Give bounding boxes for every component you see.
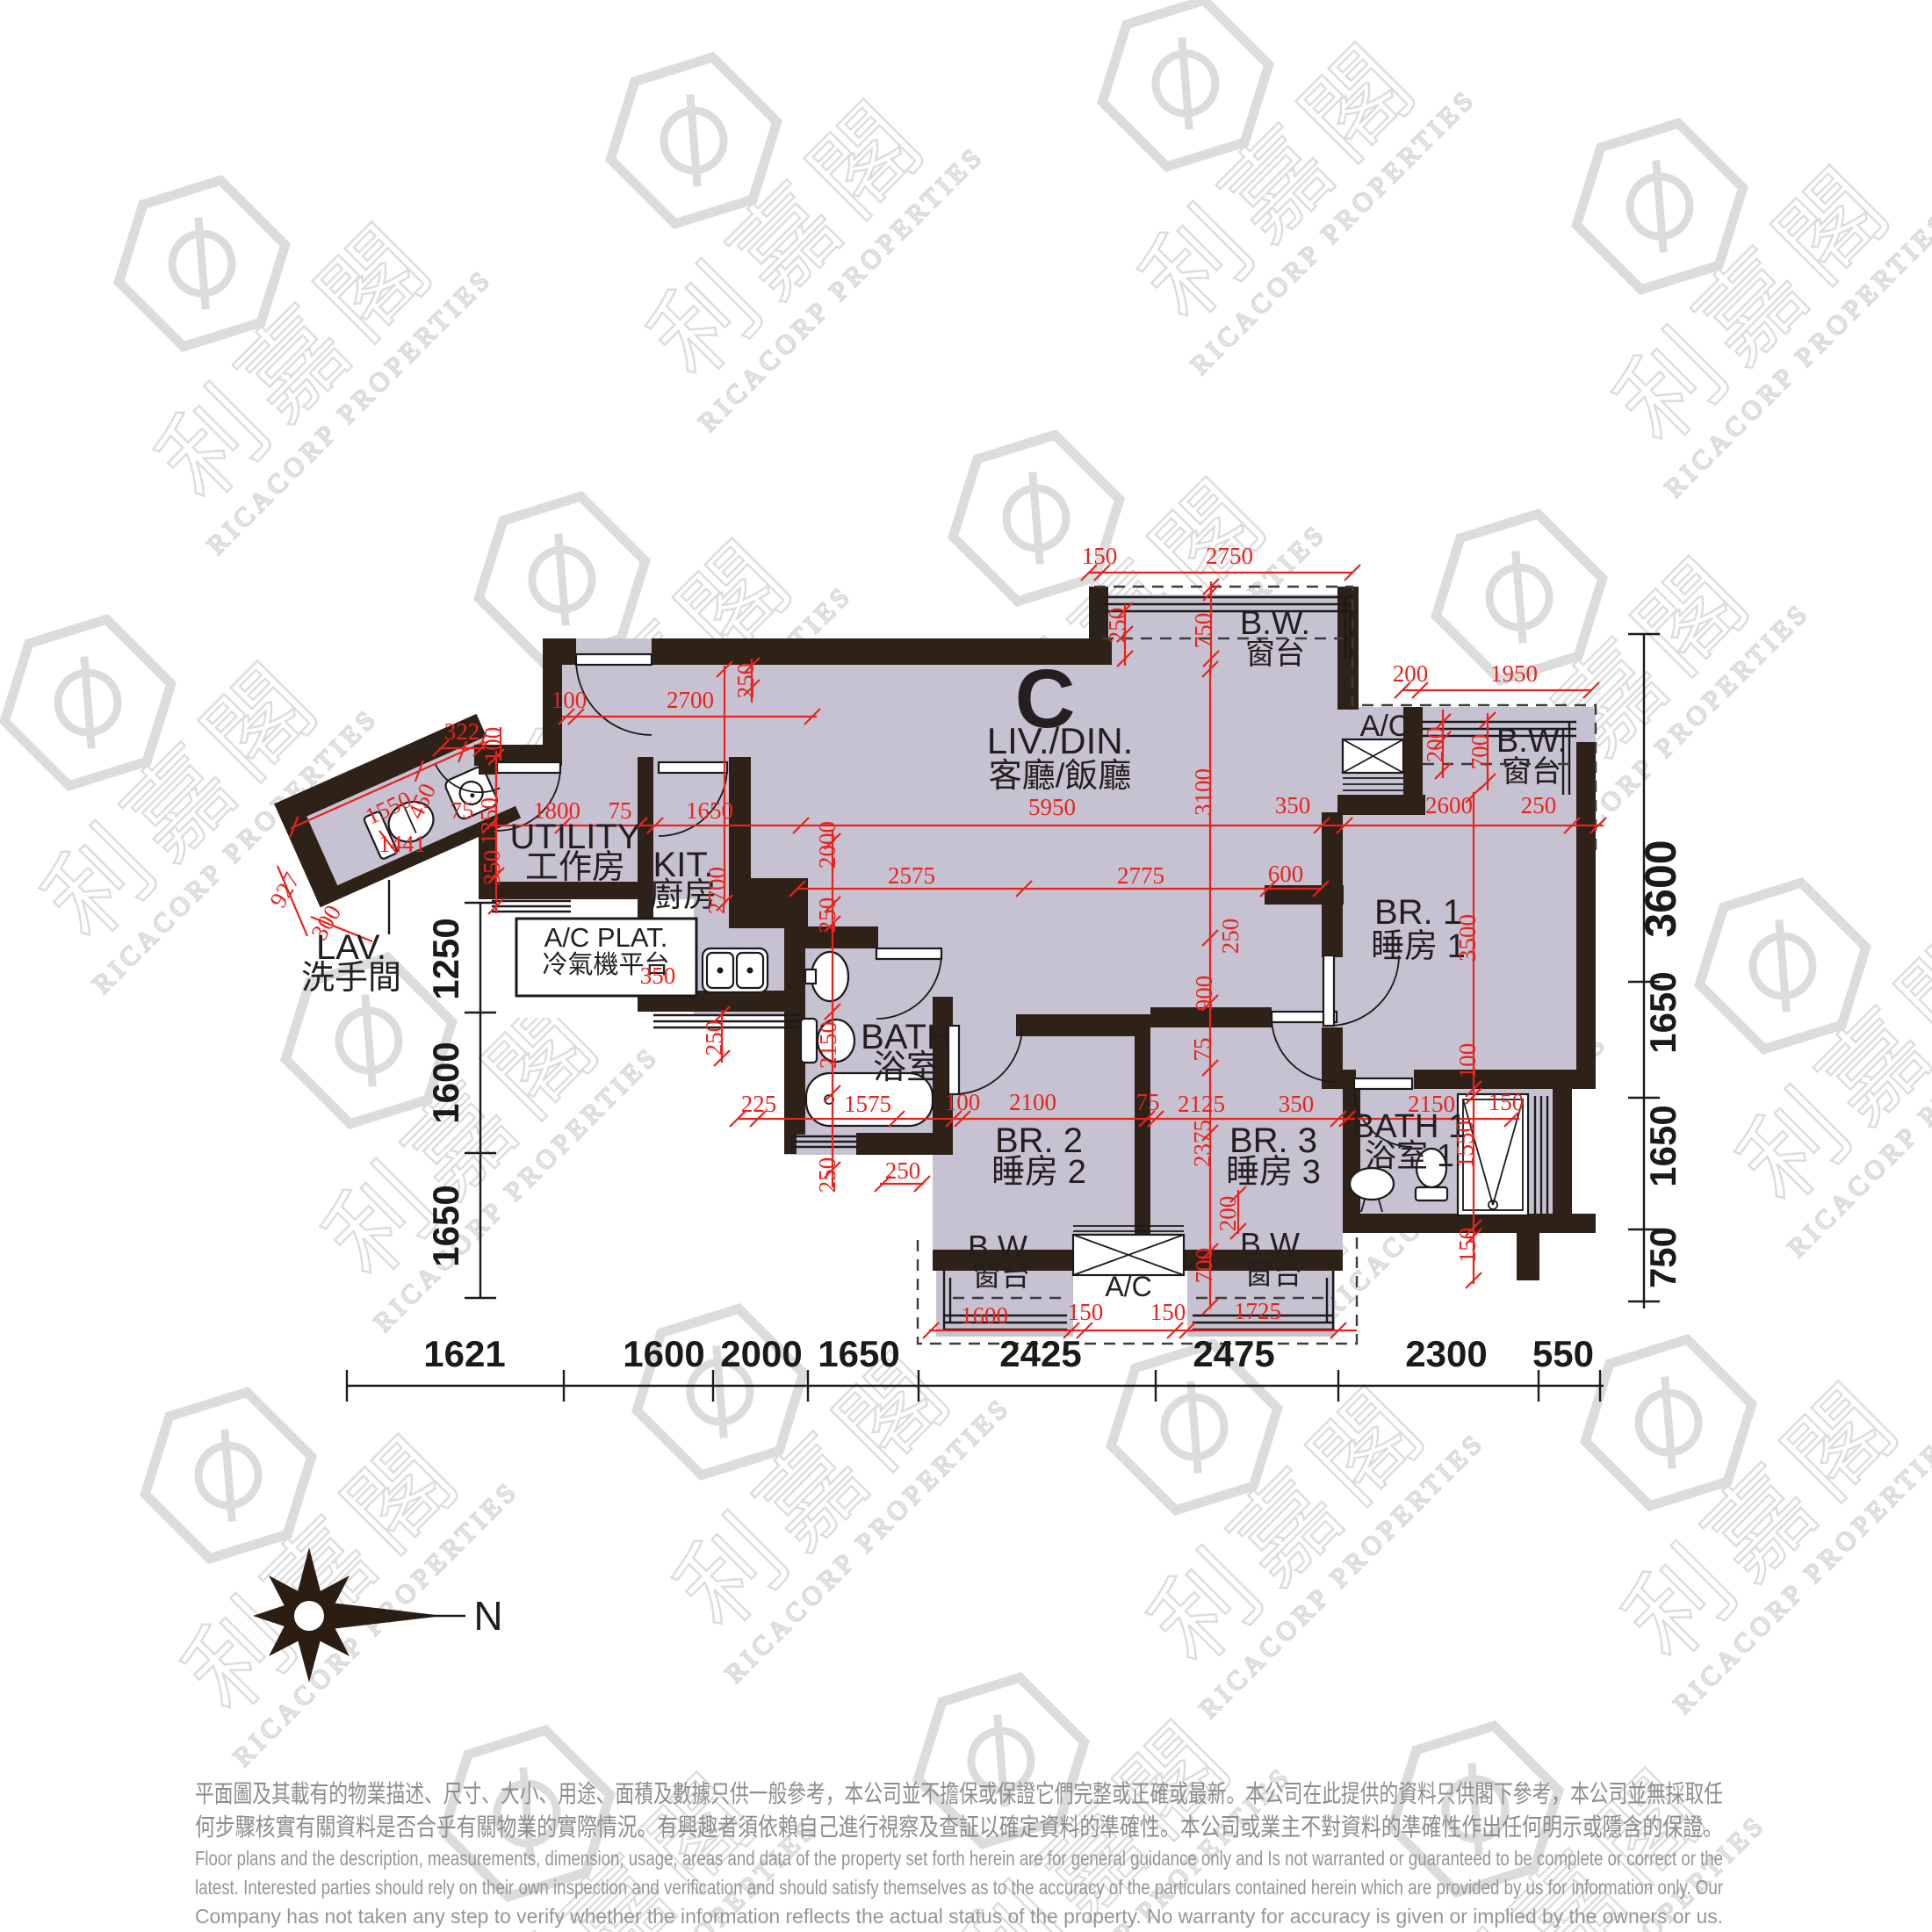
ricacorp-watermark-icon: 利嘉閣RICACORP PROPERTIES xyxy=(988,0,1481,380)
dim-label: 1550 xyxy=(1452,1121,1478,1168)
dim-label: 350 xyxy=(1275,792,1311,818)
room-label-zh: 工作房 xyxy=(525,849,625,886)
dim-label: 225 xyxy=(741,1091,777,1117)
room-label-zh: 窗台 xyxy=(1244,1258,1302,1290)
dim-label: 2150 xyxy=(815,1021,841,1069)
dim-label: 200 xyxy=(1422,727,1448,763)
dim-label: 2700 xyxy=(703,867,730,914)
dim-label: 75 xyxy=(609,797,632,824)
dim-label: 350 xyxy=(1279,1091,1315,1117)
dim-label: 250 xyxy=(885,1157,921,1184)
room-label-zh: 窗台 xyxy=(1502,755,1561,789)
axis-label-left: 1600 xyxy=(425,1042,466,1123)
room-label-zh: 洗手間 xyxy=(301,960,401,997)
axis-label-bottom: 2425 xyxy=(999,1333,1081,1374)
dim-label: 322 xyxy=(444,718,480,745)
ricacorp-watermark-icon: 利嘉閣RICACORP PROPERTIES xyxy=(4,66,498,559)
axis-label-bottom: 550 xyxy=(1532,1333,1594,1374)
dim-label: 1725 xyxy=(1234,1298,1281,1324)
floor-plan-canvas: 利嘉閣RICACORP PROPERTIES利嘉閣RICACORP PROPER… xyxy=(0,0,1932,1932)
dim-label: 1350 xyxy=(476,797,502,845)
room-label-en: B.W. xyxy=(1496,723,1567,760)
dim-label: 1650 xyxy=(686,797,733,824)
room-label-en: A/C xyxy=(1105,1271,1151,1302)
dim-label: 250 xyxy=(1104,608,1130,644)
dim-label: 100 xyxy=(551,687,588,713)
room-label-en: A/C PLAT. xyxy=(544,922,668,953)
dim-label: 3500 xyxy=(1454,914,1481,962)
dim-label: 5950 xyxy=(1028,794,1076,820)
room-label-zh: 浴室 1 xyxy=(1365,1137,1454,1173)
dim-label: 2600 xyxy=(1425,792,1473,818)
disclaimer-en-line: latest. Interested parties should rely o… xyxy=(195,1876,1723,1899)
dim-label: 2375 xyxy=(1189,1120,1215,1167)
dim-label: 1575 xyxy=(844,1091,891,1117)
room-label-zh: 睡房 1 xyxy=(1371,928,1466,965)
dim-label: 100 xyxy=(479,727,506,763)
misc-text-layer: N xyxy=(473,1593,502,1639)
dim-label: 600 xyxy=(1268,861,1304,887)
dim-label: 700 xyxy=(1467,734,1493,770)
dim-label: 2575 xyxy=(888,862,935,889)
dim-label: 3100 xyxy=(1190,768,1216,816)
dim-label: 1441 xyxy=(378,831,426,857)
axis-label-bottom: 2475 xyxy=(1193,1333,1274,1374)
room-label-en: B.W. xyxy=(1240,605,1310,642)
dim-label: 350 xyxy=(479,850,505,886)
disclaimer-en-line: Company has not taken any step to verify… xyxy=(195,1905,1723,1928)
room-label-zh: 窗台 xyxy=(1245,638,1305,671)
axis-label-bottom: 1621 xyxy=(423,1333,505,1374)
dim-label: 150 xyxy=(1082,543,1118,569)
dim-label: 200 xyxy=(1393,660,1429,687)
dim-label: 1950 xyxy=(1490,660,1538,687)
dim-label: 750 xyxy=(1190,613,1216,649)
dim-label: 2125 xyxy=(1178,1091,1225,1117)
dim-label: 75 xyxy=(1189,1038,1215,1062)
floor-plan-page: 利嘉閣RICACORP PROPERTIES利嘉閣RICACORP PROPER… xyxy=(0,0,1932,1932)
dim-label: 1600 xyxy=(961,1302,1008,1329)
dim-label: 250 xyxy=(814,898,840,934)
axis-label-right: 750 xyxy=(1642,1227,1683,1288)
axis-label-bottom: 1650 xyxy=(818,1333,899,1374)
dim-label: 150 xyxy=(1454,1228,1481,1264)
dim-label: 250 xyxy=(732,663,759,699)
dim-label: 2700 xyxy=(667,687,714,713)
dim-label: 2750 xyxy=(1206,543,1253,569)
axis-label-right: 1650 xyxy=(1642,971,1683,1053)
dim-label: 250 xyxy=(1521,792,1557,818)
compass-north-label: N xyxy=(473,1593,502,1639)
dim-label: 150 xyxy=(1489,1089,1525,1115)
dim-label: 900 xyxy=(1191,976,1217,1012)
dim-label: 200 xyxy=(1215,1196,1241,1232)
axis-label-bottom: 2000 xyxy=(720,1333,802,1374)
dim-label: 150 xyxy=(1150,1299,1186,1325)
room-label-zh: 浴室 xyxy=(873,1049,940,1086)
axis-label-bottom: 2300 xyxy=(1405,1333,1487,1374)
dim-label: 75 xyxy=(451,797,474,824)
room-label-en: BR. 1 xyxy=(1374,893,1462,932)
dim-label: 2000 xyxy=(814,821,840,869)
dim-label: 100 xyxy=(945,1089,981,1115)
ricacorp-watermark-icon: 利嘉閣RICACORP PROPERTIES xyxy=(496,0,990,437)
room-label-en: LIV./DIN. xyxy=(987,720,1134,761)
ricacorp-watermark-icon: 利嘉閣RICACORP PROPERTIES xyxy=(1462,9,1932,502)
disclaimer-zh-line: 何步驟核實有關資料是否合乎有關物業的實際情況。有興趣者須依賴自己進行視察及查証以… xyxy=(195,1813,1723,1841)
ricacorp-watermark-icon: 利嘉閣RICACORP PROPERTIES xyxy=(1471,1225,1932,1719)
room-label-zh: 睡房 2 xyxy=(991,1154,1086,1191)
axis-label-left: 1250 xyxy=(425,918,466,999)
dim-label: 2100 xyxy=(1009,1089,1056,1115)
dim-label: 75 xyxy=(1136,1089,1160,1115)
room-label-zh: 窗台 xyxy=(972,1259,1030,1292)
kitchen-sink-icon xyxy=(703,948,768,992)
dim-label: 150 xyxy=(1068,1299,1104,1325)
axis-label-right: 1650 xyxy=(1642,1105,1683,1186)
axis-label-left: 1650 xyxy=(425,1185,466,1266)
dim-label: 250 xyxy=(1217,919,1244,955)
disclaimer-layer: 平面圖及其載有的物業描述、尺寸、大小、用途、面積及數據只供一般參考，本公司並不擔… xyxy=(195,1780,1723,1928)
dim-label: 100 xyxy=(1454,1043,1481,1079)
dim-label: 1800 xyxy=(533,797,580,824)
axis-label-bottom: 1600 xyxy=(623,1333,704,1374)
dim-label: 2150 xyxy=(1408,1091,1455,1117)
dim-label: 350 xyxy=(640,962,676,989)
dim-label: 250 xyxy=(814,1157,840,1193)
axis-label-right: 3600 xyxy=(1636,840,1685,937)
dim-label: 250 xyxy=(701,1020,727,1056)
watermark-cjk: 利嘉閣 xyxy=(1720,904,1932,1222)
room-label-en: B.W. xyxy=(1240,1226,1307,1262)
dim-label: 927 xyxy=(264,868,305,912)
dim-label: 2775 xyxy=(1117,862,1164,889)
room-label-zh: 客廳/飯廳 xyxy=(989,758,1132,795)
dim-label: 700 xyxy=(1191,1248,1217,1284)
room-label-zh: 睡房 3 xyxy=(1226,1154,1321,1191)
disclaimer-zh-line: 平面圖及其載有的物業描述、尺寸、大小、用途、面積及數據只供一般參考，本公司並不擔… xyxy=(195,1780,1723,1807)
room-label-en: A/C xyxy=(1360,710,1410,743)
disclaimer-en-line: Floor plans and the description, measure… xyxy=(195,1847,1723,1870)
